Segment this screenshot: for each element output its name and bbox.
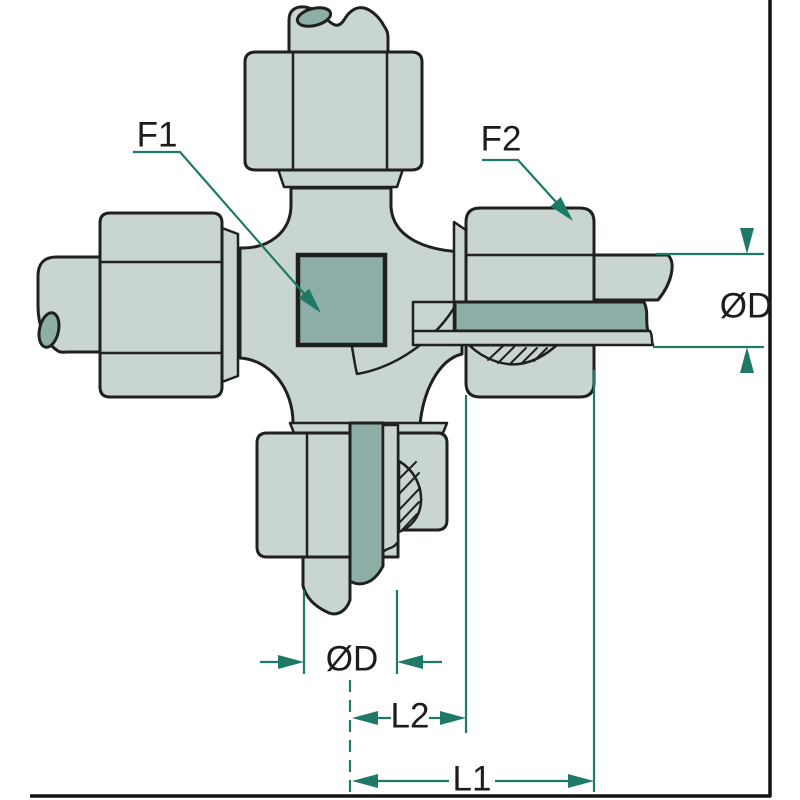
left-port [36, 213, 222, 397]
l2-arrow-left-icon [352, 711, 378, 725]
dimension-od-bottom [260, 590, 442, 793]
l1-arrow-right-icon [568, 774, 594, 788]
top-washer [278, 169, 403, 187]
right-tube-wall [413, 331, 653, 345]
bottom-tube-wall [383, 425, 398, 552]
l1-arrow-left-icon [352, 774, 378, 788]
label-f1: F1 [137, 118, 178, 153]
top-port [245, 5, 422, 170]
left-nut [100, 213, 222, 397]
right-tube-section [455, 302, 648, 331]
diagram-canvas: F1 F2 ØD ØD L2 L1 [0, 0, 800, 800]
left-washer [222, 228, 238, 382]
bottom-port [257, 423, 447, 614]
od-bottom-arrow-right-icon [278, 655, 304, 669]
f2-leader-line [482, 160, 556, 202]
label-l2: L2 [391, 699, 430, 734]
top-nut [245, 52, 422, 170]
bottom-tube-section [350, 423, 383, 584]
label-f2: F2 [481, 122, 522, 157]
label-od-bottom: ØD [326, 642, 379, 677]
l2-arrow-right-icon [440, 711, 466, 725]
label-od-right: ØD [720, 289, 773, 324]
right-tube-upper [594, 255, 672, 300]
od-right-arrow-up-icon [740, 347, 754, 373]
cross-fitting-diagram [0, 0, 800, 800]
label-l1: L1 [453, 762, 492, 797]
od-right-arrow-down-icon [740, 228, 754, 254]
right-nut-lower [466, 345, 594, 397]
bottom-tube-broken-end [303, 557, 350, 614]
od-bottom-arrow-left-icon [397, 655, 423, 669]
